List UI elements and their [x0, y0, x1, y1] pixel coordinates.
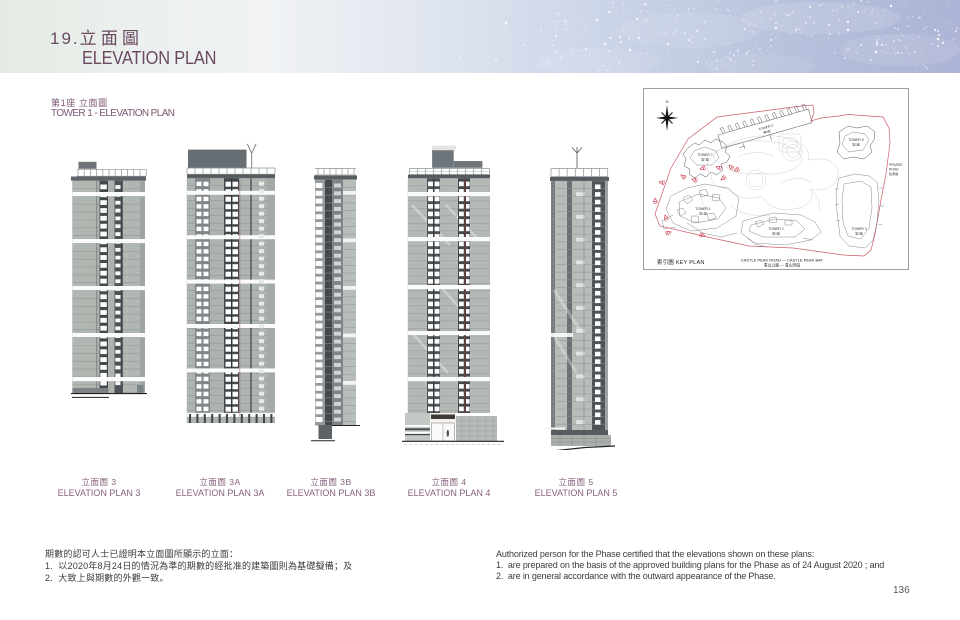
- svg-text:TOWER 3: TOWER 3: [851, 227, 866, 231]
- svg-text:青山公路 — 青山灣段: 青山公路 — 青山灣段: [764, 263, 800, 268]
- svg-text:TOWER 1: TOWER 1: [695, 207, 710, 211]
- svg-text:TOWER 7: TOWER 7: [697, 153, 712, 157]
- svg-text:TOWER 5: TOWER 5: [848, 138, 863, 142]
- svg-text:索引圖 KEY PLAN: 索引圖 KEY PLAN: [657, 258, 705, 266]
- svg-text:私家路: 私家路: [889, 171, 898, 176]
- svg-text:第5座: 第5座: [852, 142, 860, 147]
- svg-text:第7座: 第7座: [701, 157, 709, 162]
- svg-text:TOWER 2: TOWER 2: [768, 227, 783, 231]
- svg-text:CASTLE PEAK ROAD — CASTLE PE: CASTLE PEAK ROAD — CASTLE PEAK BAY: [741, 258, 824, 263]
- svg-text:ROAD: ROAD: [889, 168, 899, 172]
- svg-text:第3座: 第3座: [855, 231, 863, 236]
- svg-text:PRIVATE: PRIVATE: [889, 163, 903, 167]
- svg-text:第1座: 第1座: [699, 211, 707, 216]
- svg-text:N: N: [666, 99, 669, 104]
- svg-text:第2座: 第2座: [772, 231, 780, 236]
